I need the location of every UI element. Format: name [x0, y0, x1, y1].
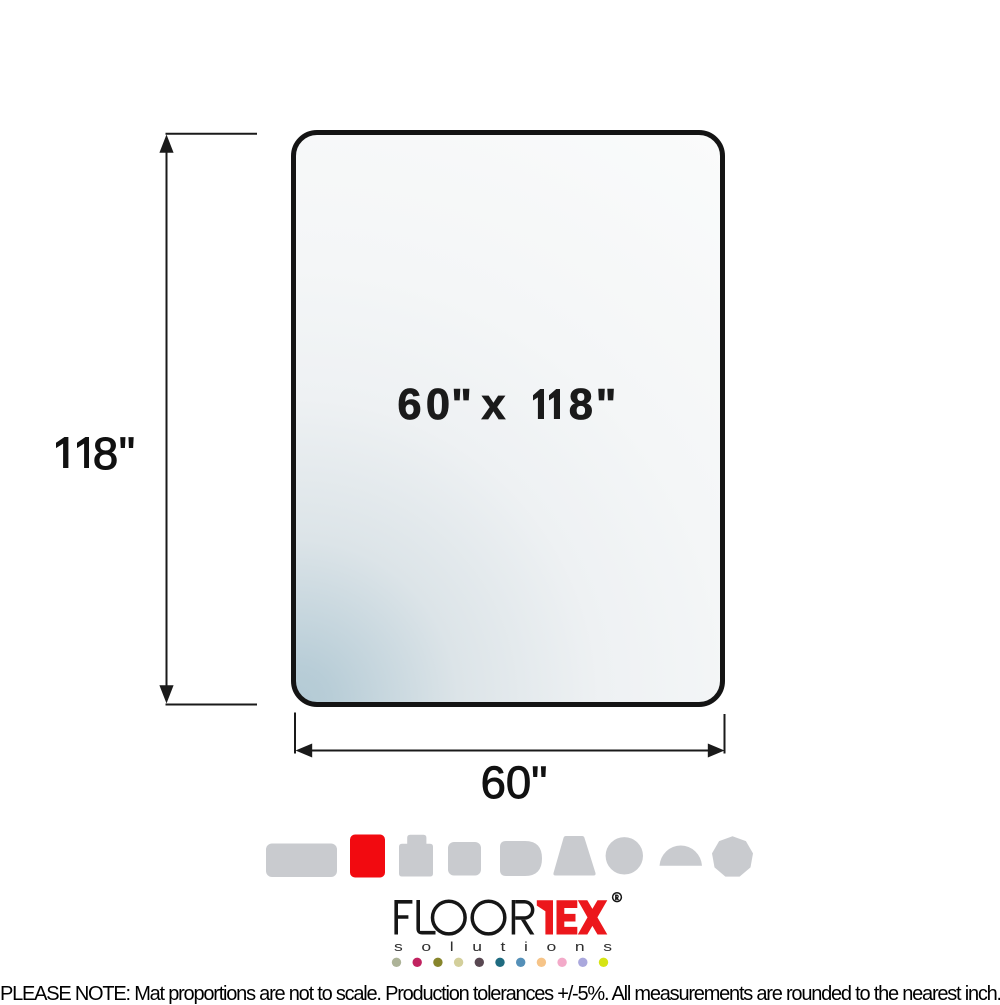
svg-text:solutions: solutions [394, 940, 612, 954]
